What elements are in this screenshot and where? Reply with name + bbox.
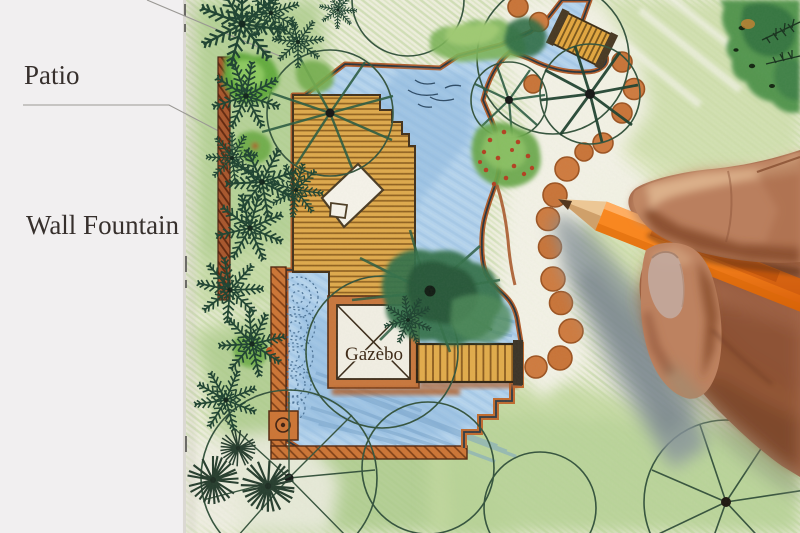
svg-text:Patio: Patio	[24, 60, 80, 90]
svg-text:Wall Fountain: Wall Fountain	[26, 210, 180, 240]
